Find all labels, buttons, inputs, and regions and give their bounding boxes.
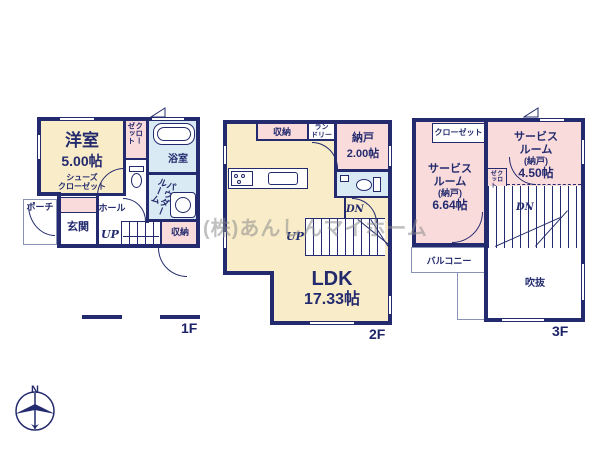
window: [540, 118, 564, 122]
wall: [412, 243, 488, 247]
toilet-tank-1f-icon: [129, 166, 144, 172]
window: [37, 135, 41, 159]
hall-label: ホール: [98, 203, 126, 213]
ldk-size: 17.33帖: [294, 291, 370, 309]
hall-door-arc: [123, 198, 146, 221]
service2-name2: ルーム: [492, 144, 580, 157]
window: [223, 146, 227, 164]
shoes-closet-line2: クローゼット: [42, 182, 122, 191]
floor2-label: 2F: [369, 326, 385, 342]
balcony-column: [457, 273, 485, 320]
storage-2f-label: 収納: [262, 127, 302, 137]
shoe-closet-strip: [60, 197, 98, 213]
wall: [160, 221, 162, 246]
window: [60, 117, 94, 121]
floor-plan-canvas: 洋室 5.00帖 シューズ クローゼット クロー ゼット 浴室 パウダー ルーム…: [0, 0, 600, 449]
shoes-closet-label: シューズ クローゼット: [42, 173, 122, 191]
wall: [57, 192, 61, 248]
closet-1f-line2: ゼット: [127, 122, 135, 160]
wall: [484, 122, 488, 322]
stairs-1f-arrow-line: [123, 236, 159, 237]
sink-icon: [268, 172, 298, 185]
service2-size: 4.50帖: [492, 167, 580, 181]
wall: [223, 120, 227, 275]
toilet-tank-2f-icon: [373, 177, 381, 192]
floor3-label: 3F: [552, 323, 568, 339]
toilet-basin-2f-icon: [340, 175, 349, 182]
nando-label: 納戸: [343, 132, 383, 145]
bathtub-inner-icon: [157, 127, 191, 141]
void-label: 吹抜: [518, 278, 552, 290]
vent-triangle-icon: [523, 107, 539, 118]
window: [581, 140, 585, 164]
stove-burner-icon: [234, 174, 238, 178]
scale-dash: [160, 315, 200, 319]
stove-burner-icon: [241, 174, 245, 178]
washstand-bowl-icon: [175, 197, 191, 213]
service2-label: サービス ルーム (納戸) 4.50帖: [492, 131, 580, 180]
window: [581, 264, 585, 300]
stairs-dn-label-3f: DN: [516, 202, 534, 213]
toilet-bowl-1f-icon: [131, 173, 142, 188]
wall: [270, 271, 274, 325]
window: [310, 321, 354, 325]
service1-name1: サービス: [416, 163, 484, 176]
entrance-label: 玄関: [60, 221, 96, 234]
porch-label: ポーチ: [24, 202, 56, 212]
bath-label: 浴室: [160, 154, 196, 166]
stairs-3f: [488, 186, 581, 248]
wall: [223, 271, 274, 275]
compass-icon: N: [6, 380, 64, 438]
service1-size: 6.64帖: [416, 199, 484, 213]
service1-label: サービス ルーム (納戸) 6.64帖: [416, 163, 484, 212]
balcony-label: バルコニー: [422, 256, 476, 266]
floor1-label: 1F: [181, 320, 197, 336]
vent-triangle-icon: [150, 107, 166, 118]
stairs-up-label-1f: UP: [101, 228, 119, 241]
compass-north-label: N: [31, 384, 39, 396]
western-room-label: 洋室: [42, 131, 122, 151]
wall: [39, 193, 125, 196]
small-closet-line2: ゼット: [489, 170, 495, 195]
small-closet-label: クロ ゼット: [489, 170, 502, 195]
window: [502, 318, 544, 322]
wall: [196, 117, 200, 248]
service1-name2: ルーム: [416, 176, 484, 189]
wall: [256, 124, 258, 139]
laundry-label: ラン ドリー: [308, 124, 335, 140]
toilet-bowl-2f-icon: [356, 179, 372, 191]
stove-burner-icon: [237, 180, 241, 184]
wall: [57, 244, 200, 248]
small-closet-line1: クロ: [495, 170, 501, 195]
service2-name1: サービス: [492, 131, 580, 144]
ldk-label: LDK: [300, 268, 364, 291]
stairs-3f-dashed-edge: [507, 184, 581, 185]
wall: [337, 169, 388, 172]
scale-dash: [82, 315, 122, 319]
wall: [148, 172, 198, 175]
laundry-line1: ラン: [308, 124, 335, 132]
laundry-line2: ドリー: [308, 132, 335, 140]
room-nando: [337, 124, 388, 170]
window: [388, 296, 392, 314]
watermark-text: (株)あんしんマイホーム: [203, 212, 428, 241]
western-room-size: 5.00帖: [42, 153, 122, 169]
closet-3f-label: クローゼット: [434, 128, 483, 137]
window: [388, 146, 392, 166]
nando-size: 2.00帖: [341, 148, 385, 161]
storage-1f-label: 収納: [164, 227, 196, 237]
shoes-closet-line1: シューズ: [42, 173, 122, 182]
backdoor-arc: [158, 248, 187, 277]
stairs-1f: [121, 221, 161, 246]
closet-1f-label: クロー ゼット: [127, 122, 143, 160]
closet-1f-line1: クロー: [135, 122, 143, 160]
